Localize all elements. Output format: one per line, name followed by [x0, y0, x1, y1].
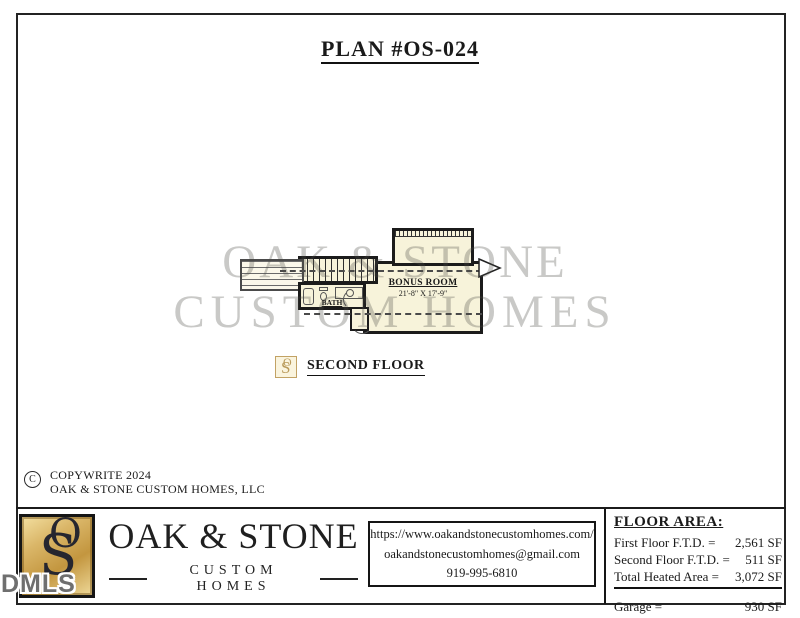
row-value: 3,072 SF — [735, 568, 782, 585]
door-swing-arc — [352, 314, 372, 334]
bonus-room-label: BONUS ROOM 21'-8" X 17'-9" — [363, 278, 483, 298]
door-swing-arc — [343, 290, 362, 309]
floor-area-heading: FLOOR AREA: — [614, 514, 782, 531]
email-text: oakandstonecustomhomes@gmail.com — [370, 547, 594, 562]
bonus-room-upper — [392, 228, 474, 266]
copyright-line1: COPYWRITE 2024 — [50, 469, 265, 483]
website-text: https://www.oakandstonecustomhomes.com/ — [370, 527, 594, 542]
floor-area-total-row: Total Heated Area = 3,072 SF — [614, 568, 782, 589]
row-label: First Floor F.T.D. = — [614, 534, 715, 551]
floor-area-row: First Floor F.T.D. = 2,561 SF — [614, 534, 782, 551]
row-value: 2,561 SF — [735, 534, 782, 551]
contact-box: https://www.oakandstonecustomhomes.com/ … — [368, 521, 596, 587]
row-value: 511 SF — [745, 551, 782, 568]
row-label: Garage = — [614, 598, 662, 615]
floor-area-table: FLOOR AREA: First Floor F.T.D. = 2,561 S… — [614, 514, 782, 615]
toilet-icon — [319, 287, 328, 291]
brand-name: OAK & STONE — [101, 515, 366, 557]
page-title-text: PLAN #OS-024 — [321, 36, 479, 64]
room-name: BONUS ROOM — [363, 278, 483, 288]
ceiling-break-line — [280, 270, 482, 272]
ceiling-break-line — [304, 313, 482, 315]
row-label: Total Heated Area = — [614, 568, 719, 585]
copyright-icon: C — [24, 471, 41, 488]
monogram-icon: O S — [275, 356, 297, 378]
footer-divider — [604, 509, 606, 604]
roof-extension — [240, 259, 304, 291]
room-dimensions: 21'-8" X 17'-9" — [363, 289, 483, 298]
tagline-rule — [109, 578, 147, 580]
second-floor-text: SECOND FLOOR — [307, 358, 425, 376]
tagline-rule — [320, 578, 358, 580]
copyright-line2: OAK & STONE CUSTOM HOMES, LLC — [50, 483, 265, 497]
plan-sheet: PLAN #OS-024 BATH BONUS ROOM 21'-8" X 17… — [0, 0, 800, 618]
page-title: PLAN #OS-024 — [0, 36, 800, 62]
brand-wordmark: OAK & STONE CUSTOM HOMES — [101, 515, 366, 595]
floor-area-row: Second Floor F.T.D. = 511 SF — [614, 551, 782, 568]
garage-row: Garage = 930 SF — [614, 598, 782, 615]
tagline-text: CUSTOM HOMES — [155, 563, 311, 595]
second-floor-label: O S SECOND FLOOR — [275, 356, 425, 378]
phone-text: 919-995-6810 — [370, 566, 594, 581]
row-label: Second Floor F.T.D. = — [614, 551, 730, 568]
monogram-s: S — [281, 358, 290, 378]
brand-tagline: CUSTOM HOMES — [101, 563, 366, 595]
title-block-footer: O S OAK & STONE CUSTOM HOMES https://www… — [16, 507, 786, 604]
row-value: 930 SF — [745, 598, 782, 615]
floor-plan: BATH BONUS ROOM 21'-8" X 17'-9" — [240, 228, 520, 368]
wall-hatch — [395, 231, 471, 237]
copyright-block: C COPYWRITE 2024 OAK & STONE CUSTOM HOME… — [24, 469, 265, 496]
mls-watermark: DMLS — [1, 570, 76, 599]
